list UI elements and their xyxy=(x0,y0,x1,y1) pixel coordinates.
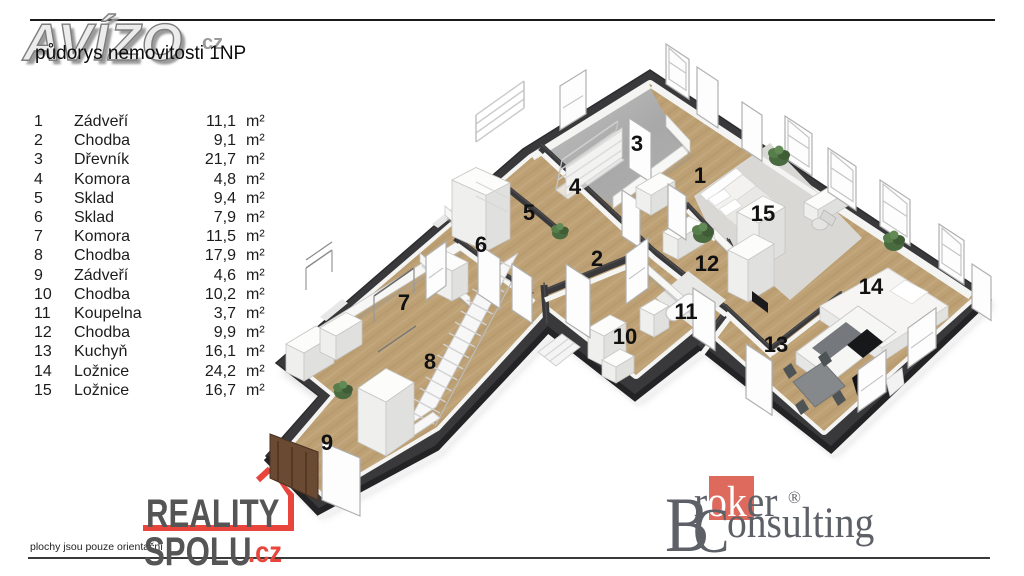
svg-text:11: 11 xyxy=(674,299,697,324)
svg-text:15: 15 xyxy=(751,201,775,226)
svg-text:10: 10 xyxy=(613,324,637,349)
svg-text:13: 13 xyxy=(764,332,788,357)
svg-text:9: 9 xyxy=(321,430,333,455)
svg-text:3: 3 xyxy=(631,131,643,156)
svg-text:7: 7 xyxy=(398,290,410,315)
svg-text:6: 6 xyxy=(475,232,487,257)
svg-text:14: 14 xyxy=(859,274,884,299)
svg-text:8: 8 xyxy=(424,349,436,374)
svg-text:5: 5 xyxy=(523,200,535,225)
svg-text:4: 4 xyxy=(569,174,582,199)
svg-text:12: 12 xyxy=(695,251,719,276)
svg-text:2: 2 xyxy=(591,246,603,271)
svg-text:1: 1 xyxy=(694,163,706,188)
